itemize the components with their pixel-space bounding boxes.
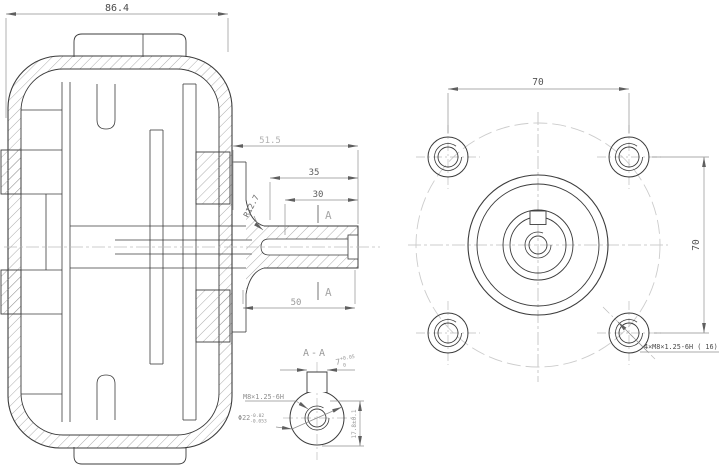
section-marker-a-top: A	[325, 209, 332, 222]
thread-spec-label: M8×1.25-6H	[243, 393, 284, 401]
key-width-dim: 7+0.050	[335, 354, 357, 370]
bolt-hole-bottom-left	[416, 301, 480, 365]
section-aa-dimensions	[245, 370, 364, 446]
bearing-block-bottom	[196, 290, 230, 342]
front-view-dimensions	[448, 89, 719, 352]
dim-bolt-spacing-horizontal: 70	[532, 77, 544, 88]
left-hub-step-bottom	[1, 270, 21, 314]
bore-diameter-label: Φ22-0.02-0.053	[238, 413, 267, 425]
fillet-radius-label: R12.7	[242, 193, 261, 219]
dim-shaft-51-5: 51.5	[259, 136, 281, 146]
front-view: 70 70 4×M8×1.25-6H ( 16)	[408, 77, 719, 382]
bolt-hole-top-right	[597, 125, 661, 189]
top-cap	[74, 34, 186, 57]
engineering-drawing: 86.4 51.5 35 30 50 R12.7 A A	[0, 0, 720, 468]
dim-bolt-spacing-vertical: 70	[691, 239, 702, 251]
section-aa-title: A-A	[303, 348, 327, 359]
bolt-hole-top-left	[416, 125, 480, 189]
bolt-thread-note: 4×M8×1.25-6H ( 16)	[644, 343, 718, 351]
dim-shaft-30: 30	[313, 190, 324, 200]
side-section-view	[1, 34, 252, 464]
cad-drawing-page: 86.4 51.5 35 30 50 R12.7 A A	[0, 0, 720, 468]
dim-overall-width: 86.4	[105, 3, 129, 14]
left-hub-step-top	[1, 150, 21, 194]
dim-shaft-50: 50	[291, 298, 302, 308]
keyway-front	[530, 211, 546, 225]
section-marker-a-bottom: A	[325, 286, 332, 299]
key-depth-dim: 17.8±0.1	[351, 409, 358, 438]
bottom-cap	[74, 447, 186, 464]
section-aa-view: A-A 7+0.050 M8×1.25-6H Φ22-0.02	[238, 348, 364, 460]
hub-shell-inner	[21, 69, 219, 435]
bearing-block-top	[196, 152, 230, 204]
dim-shaft-35: 35	[309, 168, 320, 178]
